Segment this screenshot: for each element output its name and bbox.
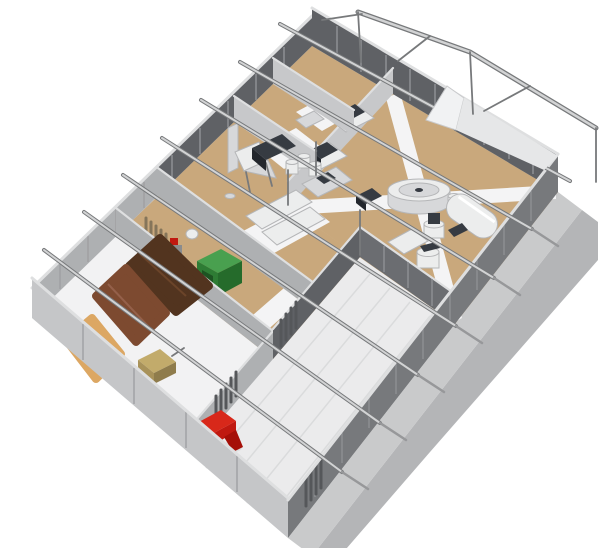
dome-cover (186, 229, 198, 239)
duct (228, 123, 238, 173)
facility-3d-render (0, 0, 600, 548)
stool (225, 194, 235, 199)
render-canvas (0, 0, 600, 548)
kettle-2 (417, 242, 440, 268)
